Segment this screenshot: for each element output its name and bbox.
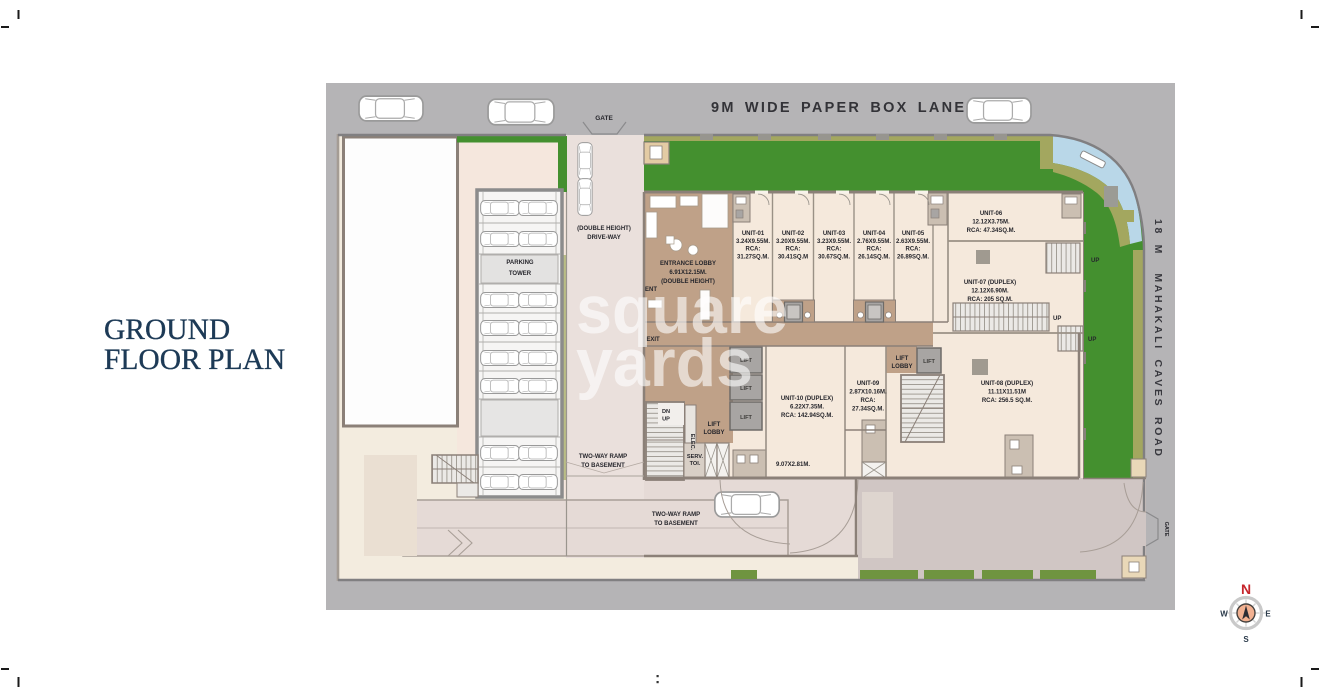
svg-text:FLOOR PLAN: FLOOR PLAN xyxy=(104,344,285,376)
svg-text:UNIT-06: UNIT-06 xyxy=(980,211,1003,217)
svg-text:LOBBY: LOBBY xyxy=(704,430,725,436)
svg-text:S: S xyxy=(1243,635,1249,644)
svg-text:3.24X9.55M.: 3.24X9.55M. xyxy=(736,239,770,245)
svg-text:LIFT: LIFT xyxy=(923,359,935,365)
svg-text:TWO-WAY RAMP: TWO-WAY RAMP xyxy=(579,454,627,460)
svg-text:27.34SQ.M.: 27.34SQ.M. xyxy=(852,407,884,413)
svg-text:(DOUBLE HEIGHT): (DOUBLE HEIGHT) xyxy=(577,226,631,232)
svg-text:TWO-WAY RAMP: TWO-WAY RAMP xyxy=(652,512,700,518)
svg-text:ELEC.: ELEC. xyxy=(689,434,695,451)
svg-text:E: E xyxy=(1265,610,1271,619)
svg-text:3.20X9.55M.: 3.20X9.55M. xyxy=(776,239,810,245)
svg-text:2.63X9.55M.: 2.63X9.55M. xyxy=(896,239,930,245)
svg-text:UP: UP xyxy=(1091,258,1099,264)
svg-text:RCA:: RCA: xyxy=(746,247,761,253)
svg-text:ENTRANCE LOBBY: ENTRANCE LOBBY xyxy=(660,261,716,267)
svg-text:UNIT-02: UNIT-02 xyxy=(782,231,805,237)
svg-text:yards: yards xyxy=(576,325,753,401)
svg-text:GATE: GATE xyxy=(595,115,613,122)
svg-text:LIFT: LIFT xyxy=(896,356,909,362)
svg-text:RCA:: RCA: xyxy=(861,398,876,404)
svg-text:9.07X2.81M.: 9.07X2.81M. xyxy=(776,462,810,468)
svg-text:18 M MAHAKALI CAVES ROAD: 18 M MAHAKALI CAVES ROAD xyxy=(1152,219,1164,458)
svg-text:UNIT-01: UNIT-01 xyxy=(742,231,765,237)
svg-text:UP: UP xyxy=(1088,337,1096,343)
svg-text:12.12X6.90M.: 12.12X6.90M. xyxy=(971,289,1009,295)
svg-text:PARKING: PARKING xyxy=(506,260,534,266)
svg-text:GATE: GATE xyxy=(1163,522,1169,537)
svg-text:UNIT-10 (DUPLEX): UNIT-10 (DUPLEX) xyxy=(781,396,833,402)
svg-text:11.11X11.51M: 11.11X11.51M xyxy=(988,390,1026,396)
svg-text:2.76X9.55M.: 2.76X9.55M. xyxy=(857,239,891,245)
svg-text:UNIT-07 (DUPLEX): UNIT-07 (DUPLEX) xyxy=(964,280,1016,286)
svg-text:RCA: 142.94SQ.M.: RCA: 142.94SQ.M. xyxy=(781,413,833,419)
svg-text:W: W xyxy=(1220,610,1228,619)
svg-text:UNIT-08 (DUPLEX): UNIT-08 (DUPLEX) xyxy=(981,381,1033,387)
svg-text:LIFT: LIFT xyxy=(708,422,721,428)
svg-text:UNIT-05: UNIT-05 xyxy=(902,231,925,237)
svg-text:26.89SQ.M.: 26.89SQ.M. xyxy=(897,254,929,260)
svg-text:LOBBY: LOBBY xyxy=(892,364,913,370)
svg-text:UP: UP xyxy=(662,417,670,423)
svg-text:N: N xyxy=(1241,581,1251,597)
svg-text:30.67SQ.M.: 30.67SQ.M. xyxy=(818,254,850,260)
svg-text:TO BASEMENT: TO BASEMENT xyxy=(654,521,698,527)
svg-text:26.14SQ.M.: 26.14SQ.M. xyxy=(858,254,890,260)
svg-text:31.27SQ.M.: 31.27SQ.M. xyxy=(737,254,769,260)
svg-text:UNIT-04: UNIT-04 xyxy=(863,231,886,237)
svg-text:RCA:: RCA: xyxy=(827,247,842,253)
svg-text:RCA:: RCA: xyxy=(906,247,921,253)
svg-text:RCA:: RCA: xyxy=(867,247,882,253)
svg-text:30.41SQ.M: 30.41SQ.M xyxy=(778,254,808,260)
svg-text:TO BASEMENT: TO BASEMENT xyxy=(581,463,625,469)
svg-text:SERV.: SERV. xyxy=(687,454,704,460)
svg-text:RCA: 256.5 SQ.M.: RCA: 256.5 SQ.M. xyxy=(982,398,1033,404)
svg-text:DN: DN xyxy=(662,409,670,415)
svg-text:UP: UP xyxy=(1053,316,1061,322)
svg-text:UNIT-09: UNIT-09 xyxy=(857,381,880,387)
svg-text:3.23X9.55M.: 3.23X9.55M. xyxy=(817,239,851,245)
svg-text:12.12X3.75M.: 12.12X3.75M. xyxy=(972,220,1010,226)
svg-text:DRIVE-WAY: DRIVE-WAY xyxy=(587,235,620,241)
svg-text:2.87X10.16M.: 2.87X10.16M. xyxy=(849,390,887,396)
svg-text:9M WIDE PAPER BOX LANE: 9M WIDE PAPER BOX LANE xyxy=(711,100,966,116)
svg-text:UNIT-03: UNIT-03 xyxy=(823,231,846,237)
svg-text:RCA: 47.34SQ.M.: RCA: 47.34SQ.M. xyxy=(967,228,1016,234)
svg-text:RCA: 205 SQ.M.: RCA: 205 SQ.M. xyxy=(967,297,1013,303)
svg-text:LIFT: LIFT xyxy=(740,415,752,421)
svg-text:TOI.: TOI. xyxy=(690,461,701,467)
svg-text:6.22X7.35M.: 6.22X7.35M. xyxy=(790,405,824,411)
svg-text:GROUND: GROUND xyxy=(104,314,230,346)
svg-text:RCA:: RCA: xyxy=(786,247,801,253)
svg-text:TOWER: TOWER xyxy=(509,271,532,277)
